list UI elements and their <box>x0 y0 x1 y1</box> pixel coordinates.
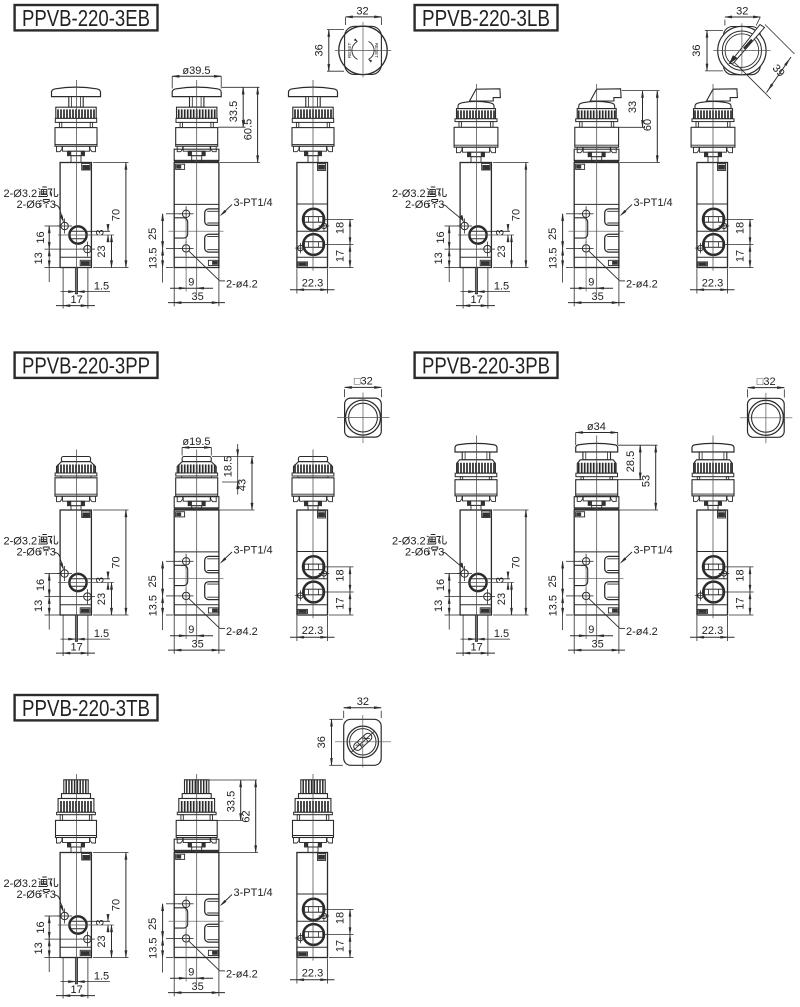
svg-text:9: 9 <box>588 277 594 289</box>
svg-text:18: 18 <box>735 222 747 234</box>
svg-text:2-ø4.2: 2-ø4.2 <box>226 626 258 638</box>
svg-text:ø34: ø34 <box>587 421 606 433</box>
svg-text:25: 25 <box>147 918 159 930</box>
svg-text:25: 25 <box>547 575 559 587</box>
svg-text:33: 33 <box>627 101 639 113</box>
svg-text:32: 32 <box>357 696 369 708</box>
svg-text:17: 17 <box>335 597 347 609</box>
svg-text:1.5: 1.5 <box>94 281 109 293</box>
svg-text:3: 3 <box>495 230 507 236</box>
svg-text:13.5: 13.5 <box>547 595 559 616</box>
svg-text:2-Ø6: 2-Ø6 <box>405 199 429 211</box>
svg-text:18: 18 <box>335 222 347 234</box>
svg-text:13: 13 <box>433 600 445 612</box>
svg-text:9: 9 <box>188 277 194 289</box>
svg-text:2-ø4.2: 2-ø4.2 <box>626 626 658 638</box>
svg-text:22.3: 22.3 <box>302 278 323 290</box>
svg-text:36: 36 <box>313 44 325 56</box>
svg-text:18: 18 <box>335 569 347 581</box>
svg-text:18: 18 <box>735 569 747 581</box>
svg-text:70: 70 <box>510 209 522 221</box>
svg-text:16: 16 <box>435 579 447 591</box>
svg-text:13.5: 13.5 <box>147 937 159 958</box>
svg-text:35: 35 <box>191 981 203 993</box>
svg-text:36: 36 <box>316 736 328 748</box>
svg-text:70: 70 <box>510 556 522 568</box>
svg-text:3: 3 <box>95 230 107 236</box>
svg-text:2-Ø6: 2-Ø6 <box>405 547 429 559</box>
svg-text:13.5: 13.5 <box>147 247 159 268</box>
svg-text:3: 3 <box>495 577 507 583</box>
svg-text:3-PT1/4: 3-PT1/4 <box>234 887 273 899</box>
svg-text:22.3: 22.3 <box>302 625 323 637</box>
svg-text:43: 43 <box>237 479 249 491</box>
svg-text:PPVB-220-3PP: PPVB-220-3PP <box>22 352 150 378</box>
svg-text:25: 25 <box>147 228 159 240</box>
svg-text:23: 23 <box>96 593 108 605</box>
svg-text:□32: □32 <box>757 376 776 388</box>
svg-text:17: 17 <box>70 642 82 654</box>
svg-text:17: 17 <box>735 250 747 262</box>
svg-text:36: 36 <box>691 44 703 56</box>
svg-text:13: 13 <box>433 252 445 264</box>
svg-text:9: 9 <box>188 624 194 636</box>
svg-text:70: 70 <box>110 899 122 911</box>
svg-text:2-ø4.2: 2-ø4.2 <box>226 969 258 981</box>
svg-text:3-PT1/4: 3-PT1/4 <box>234 545 273 557</box>
svg-text:17: 17 <box>470 642 482 654</box>
svg-text:16: 16 <box>435 231 447 243</box>
svg-text:1.5: 1.5 <box>494 628 509 640</box>
svg-text:23: 23 <box>96 935 108 947</box>
svg-text:60: 60 <box>642 119 654 131</box>
svg-text:23: 23 <box>96 245 108 257</box>
svg-text:18: 18 <box>335 912 347 924</box>
svg-text:23: 23 <box>496 593 508 605</box>
svg-text:23: 23 <box>496 245 508 257</box>
svg-text:13: 13 <box>33 942 45 954</box>
svg-text:35: 35 <box>191 291 203 303</box>
svg-text:35: 35 <box>191 638 203 650</box>
svg-text:32: 32 <box>356 5 368 17</box>
svg-text:25: 25 <box>547 228 559 240</box>
svg-text:16: 16 <box>35 921 47 933</box>
svg-text:62: 62 <box>240 810 252 822</box>
svg-text:33.5: 33.5 <box>228 101 240 122</box>
svg-text:2-ø4.2: 2-ø4.2 <box>626 279 658 291</box>
svg-text:2-Ø6: 2-Ø6 <box>17 547 41 559</box>
svg-text:22.3: 22.3 <box>702 278 723 290</box>
svg-text:3: 3 <box>95 577 107 583</box>
svg-text:17: 17 <box>335 940 347 952</box>
svg-text:53: 53 <box>640 475 652 487</box>
svg-text:RESET: RESET <box>374 43 379 59</box>
svg-text:35: 35 <box>591 291 603 303</box>
svg-text:PPVB-220-3PB: PPVB-220-3PB <box>422 352 550 378</box>
svg-text:3-PT1/4: 3-PT1/4 <box>634 197 673 209</box>
svg-text:60.5: 60.5 <box>242 119 254 140</box>
svg-text:1.5: 1.5 <box>494 281 509 293</box>
svg-text:3-PT1/4: 3-PT1/4 <box>634 545 673 557</box>
svg-text:9: 9 <box>588 624 594 636</box>
svg-text:22.3: 22.3 <box>702 625 723 637</box>
svg-text:ø39.5: ø39.5 <box>182 65 210 77</box>
svg-text:33.5: 33.5 <box>225 791 237 812</box>
svg-text:ø19.5: ø19.5 <box>182 436 210 448</box>
svg-text:17: 17 <box>335 250 347 262</box>
svg-text:1.5: 1.5 <box>94 971 109 983</box>
svg-text:13.5: 13.5 <box>147 595 159 616</box>
svg-text:70: 70 <box>110 556 122 568</box>
svg-text:RESET: RESET <box>347 43 352 59</box>
svg-text:2-Ø6: 2-Ø6 <box>17 889 41 901</box>
svg-text:25: 25 <box>147 575 159 587</box>
svg-text:17: 17 <box>470 294 482 306</box>
svg-text:13: 13 <box>33 252 45 264</box>
svg-text:70: 70 <box>110 209 122 221</box>
svg-text:17: 17 <box>735 597 747 609</box>
svg-text:3-PT1/4: 3-PT1/4 <box>234 197 273 209</box>
svg-text:□32: □32 <box>354 376 373 388</box>
svg-text:17: 17 <box>70 294 82 306</box>
svg-text:28.5: 28.5 <box>625 451 637 472</box>
svg-text:22.3: 22.3 <box>302 968 323 980</box>
svg-text:1.5: 1.5 <box>94 628 109 640</box>
svg-text:PPVB-220-3EB: PPVB-220-3EB <box>22 5 150 31</box>
svg-text:16: 16 <box>35 231 47 243</box>
svg-text:17: 17 <box>70 984 82 996</box>
svg-text:13.5: 13.5 <box>547 247 559 268</box>
svg-text:32: 32 <box>736 6 748 18</box>
svg-text:35: 35 <box>591 638 603 650</box>
svg-text:PPVB-220-3LB: PPVB-220-3LB <box>422 5 550 31</box>
svg-text:13: 13 <box>33 600 45 612</box>
svg-text:2-ø4.2: 2-ø4.2 <box>226 279 258 291</box>
svg-text:18.5: 18.5 <box>222 456 234 477</box>
svg-text:PPVB-220-3TB: PPVB-220-3TB <box>22 695 150 721</box>
svg-text:9: 9 <box>188 967 194 979</box>
svg-text:16: 16 <box>35 579 47 591</box>
svg-text:2-Ø6: 2-Ø6 <box>17 199 41 211</box>
svg-text:3: 3 <box>95 920 107 926</box>
